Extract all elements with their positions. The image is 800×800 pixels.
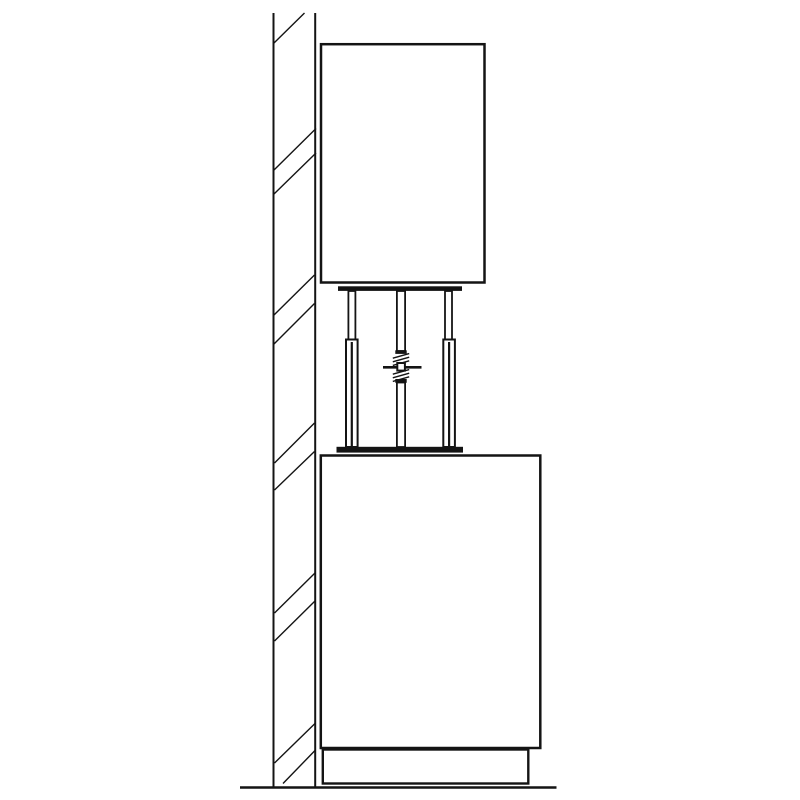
- wall-hatch-mark: [274, 153, 316, 194]
- technical-drawing: [0, 0, 800, 800]
- left-leg-upper-rod: [348, 291, 355, 341]
- lower-cabinet-outline: [321, 456, 541, 749]
- adjusting-nut: [397, 363, 405, 371]
- upper-cabinet-outline: [321, 44, 485, 282]
- wall-hatch-mark: [283, 751, 315, 784]
- spindle-upper-tube: [397, 291, 405, 351]
- mount-top-plate: [338, 286, 462, 291]
- spindle-upper-cap: [395, 350, 406, 354]
- right-leg-upper-rod: [445, 291, 452, 341]
- wall-hatch-mark: [274, 129, 316, 171]
- plinth-outline: [323, 750, 529, 784]
- mount-bottom-plate: [337, 447, 464, 453]
- spindle-lower-tube: [397, 383, 405, 448]
- drawing-page: [0, 0, 800, 800]
- wall-hatch-mark: [274, 13, 305, 43]
